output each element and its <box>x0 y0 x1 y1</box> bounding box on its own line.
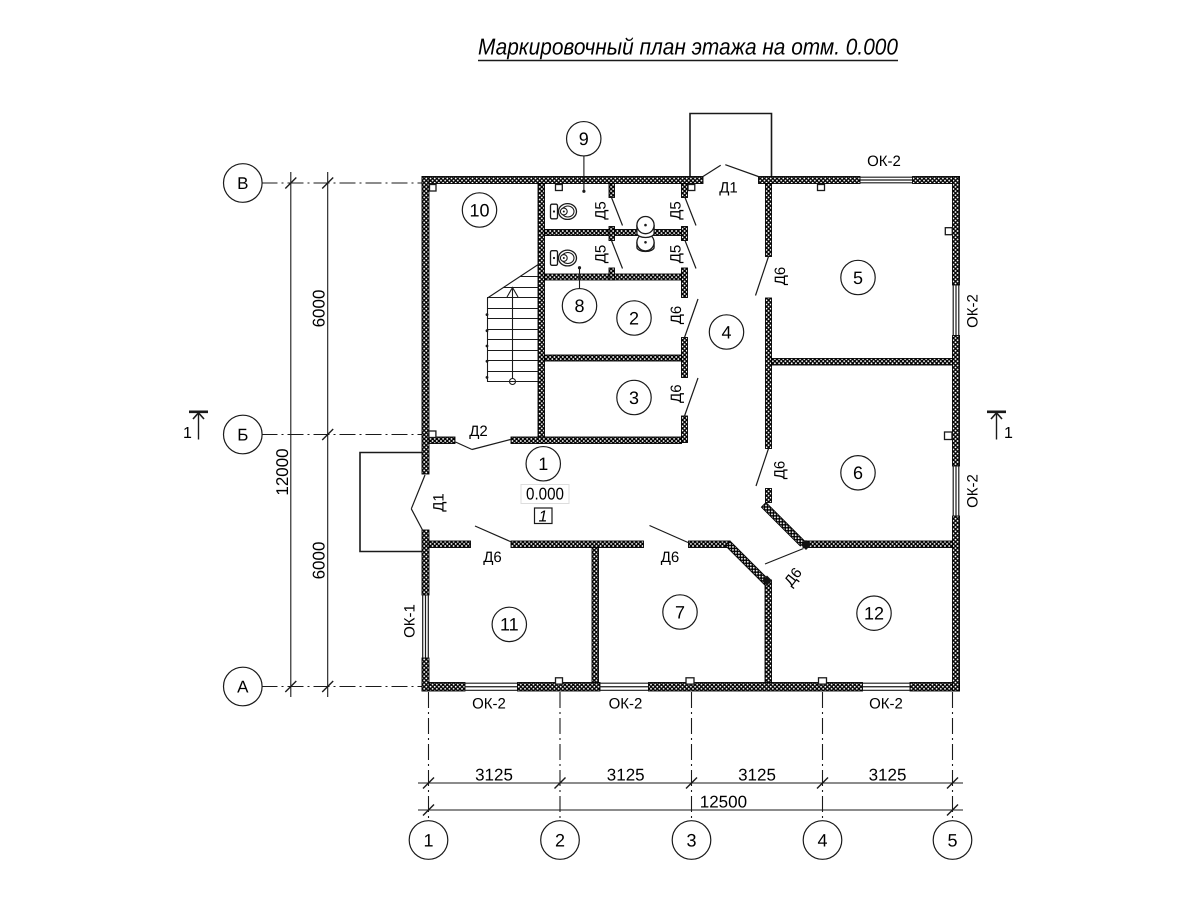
svg-text:Д6: Д6 <box>668 384 685 403</box>
svg-text:А: А <box>237 677 249 696</box>
svg-text:1: 1 <box>183 425 192 442</box>
svg-text:2: 2 <box>555 830 565 850</box>
svg-text:Д5: Д5 <box>668 245 685 264</box>
svg-text:8: 8 <box>574 296 584 316</box>
svg-text:ОК-1: ОК-1 <box>402 604 419 638</box>
svg-text:2: 2 <box>629 308 639 328</box>
svg-text:ОК-2: ОК-2 <box>965 294 982 328</box>
svg-text:Д6: Д6 <box>661 549 680 566</box>
svg-text:4: 4 <box>817 830 827 850</box>
svg-text:10: 10 <box>469 200 489 220</box>
svg-text:3125: 3125 <box>869 765 907 784</box>
svg-text:12: 12 <box>864 604 884 624</box>
svg-text:6000: 6000 <box>310 290 329 328</box>
svg-text:ОК-2: ОК-2 <box>609 696 643 713</box>
svg-text:Д6: Д6 <box>668 306 685 325</box>
svg-text:ОК-2: ОК-2 <box>867 153 901 170</box>
svg-text:12500: 12500 <box>700 792 747 811</box>
svg-text:Д5: Д5 <box>593 245 610 264</box>
svg-text:1: 1 <box>538 454 548 474</box>
svg-text:6: 6 <box>853 463 863 483</box>
svg-text:Б: Б <box>237 425 248 444</box>
svg-text:Д2: Д2 <box>469 423 488 440</box>
svg-text:5: 5 <box>947 830 957 850</box>
svg-text:1: 1 <box>423 830 433 850</box>
svg-text:Д5: Д5 <box>668 201 685 220</box>
svg-text:12000: 12000 <box>273 448 292 495</box>
svg-text:В: В <box>237 174 248 193</box>
svg-text:ОК-2: ОК-2 <box>965 474 982 508</box>
svg-text:0.000: 0.000 <box>526 485 564 504</box>
svg-text:5: 5 <box>853 268 863 288</box>
svg-text:3: 3 <box>686 830 696 850</box>
svg-text:Маркировочный план этажа на от: Маркировочный план этажа на отм. 0.000 <box>478 34 898 60</box>
svg-text:Д6: Д6 <box>483 549 502 566</box>
svg-text:ОК-2: ОК-2 <box>869 696 903 713</box>
svg-text:7: 7 <box>675 602 685 622</box>
svg-text:Д1: Д1 <box>719 180 738 197</box>
svg-text:Д6: Д6 <box>772 461 789 480</box>
svg-text:11: 11 <box>500 615 519 635</box>
svg-text:3125: 3125 <box>607 765 645 784</box>
svg-text:3125: 3125 <box>475 765 513 784</box>
svg-text:3125: 3125 <box>738 765 776 784</box>
svg-text:1: 1 <box>1004 425 1013 442</box>
svg-text:ОК-2: ОК-2 <box>472 696 506 713</box>
svg-text:1: 1 <box>539 509 548 526</box>
svg-text:6000: 6000 <box>310 542 329 580</box>
svg-text:4: 4 <box>721 322 731 342</box>
svg-text:Д6: Д6 <box>772 267 789 286</box>
svg-text:3: 3 <box>629 388 639 408</box>
svg-text:Д5: Д5 <box>593 201 610 220</box>
svg-text:9: 9 <box>579 129 589 149</box>
svg-text:Д1: Д1 <box>431 493 448 512</box>
